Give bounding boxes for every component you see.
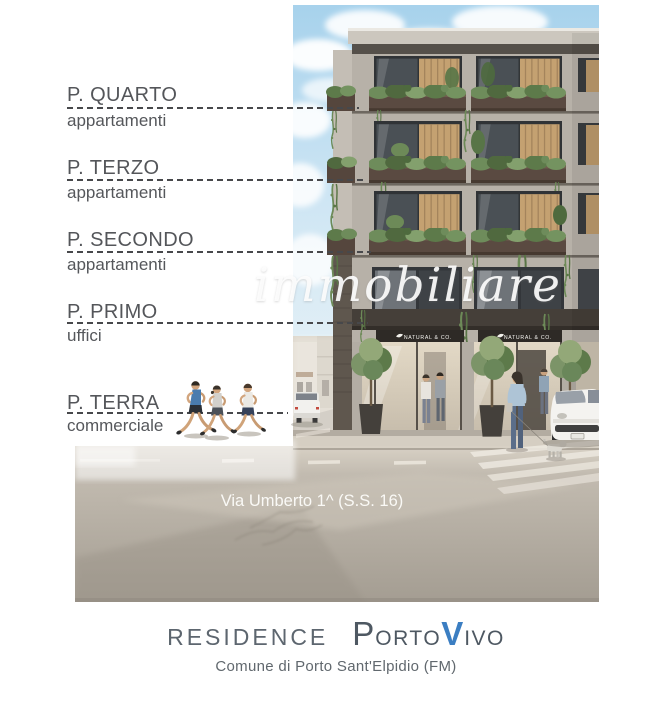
brand-orto: ORTO: [375, 627, 441, 651]
floor-label-quarto: P. QUARTO: [67, 85, 177, 106]
brand-ivo: IVO: [464, 627, 505, 651]
runner-white: [231, 384, 266, 434]
floor-use-secondo: appartamenti: [67, 256, 166, 274]
floor-use-terra: commerciale: [67, 417, 163, 435]
floor-annotations: P. QUARTO appartamenti P. TERZO appartam…: [0, 0, 650, 701]
floor-label-secondo: P. SECONDO: [67, 230, 194, 251]
leader-line-primo: [67, 322, 368, 324]
brand-p: P: [352, 615, 375, 653]
floor-label-terzo: P. TERZO: [67, 158, 160, 179]
leader-line-quarto: [67, 107, 359, 109]
leader-line-secondo: [67, 251, 371, 253]
flyer-page: NATURAL & CO. NATURAL & CO.: [0, 0, 650, 701]
floor-use-quarto: appartamenti: [67, 112, 166, 130]
floor-label-primo: P. PRIMO: [67, 302, 158, 323]
runner-gray: [199, 386, 236, 436]
municipality-label: Comune di Porto Sant'Elpidio (FM): [22, 658, 650, 675]
floor-use-terzo: appartamenti: [67, 184, 166, 202]
brand-v: V: [441, 615, 464, 653]
footer: RESIDENCE P ORTO V IVO Comune di Porto S…: [0, 615, 650, 675]
residence-label: RESIDENCE: [167, 624, 328, 651]
leader-line-terzo: [67, 179, 364, 181]
floor-use-primo: uffici: [67, 327, 102, 345]
runner-blue: [176, 381, 217, 435]
floor-label-terra: P. TERRA: [67, 393, 160, 414]
joggers: [160, 366, 280, 446]
project-title: RESIDENCE P ORTO V IVO: [22, 615, 650, 653]
